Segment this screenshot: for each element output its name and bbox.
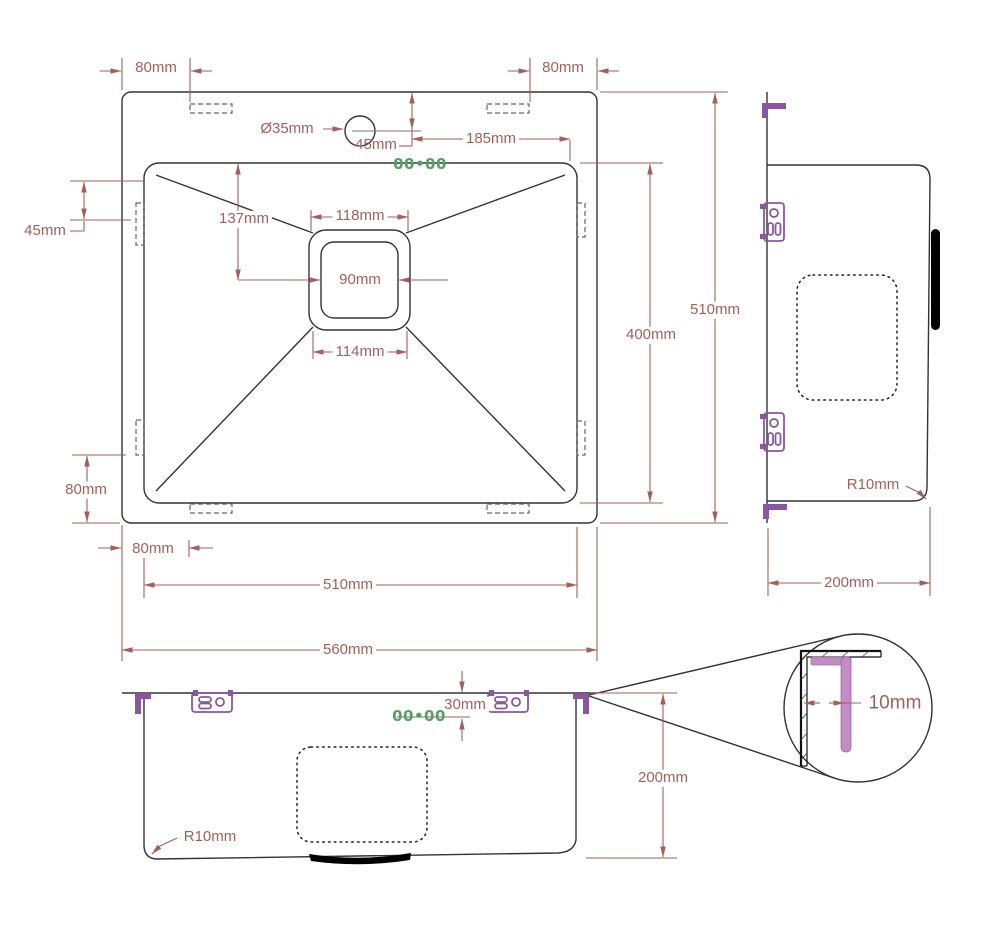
side-body [767, 165, 930, 501]
side-view [760, 92, 940, 523]
dim-bowl-width: 510mm [320, 577, 376, 594]
dim-bottom-offset-left: 80mm [132, 541, 174, 558]
front-mounting-bracket-left [192, 690, 233, 712]
dim-left-edge-to-slot: 45mm [24, 223, 66, 240]
dim-top-offset-right: 80mm [542, 60, 584, 77]
dim-drain-opening: 90mm [336, 272, 384, 289]
dim-overall-width: 560mm [320, 642, 376, 659]
dim-slot-to-bottom: 80mm [62, 482, 110, 499]
dim-drain-top-width: 118mm [333, 208, 388, 225]
mounting-slots [136, 104, 585, 513]
dim-overall-length: 510mm [687, 302, 743, 319]
front-mounting-bracket-right [488, 690, 529, 712]
dim-rim-height: 30mm [441, 697, 489, 714]
dim-front-corner-radius: R10mm [184, 829, 237, 846]
dim-side-corner-radius: R10mm [847, 477, 900, 494]
dim-top-offset-left: 80mm [135, 60, 177, 77]
front-left-clip [135, 694, 151, 714]
sink-outer-rim [122, 92, 597, 523]
dim-bowl-length: 400mm [623, 327, 679, 344]
dim-faucet-diameter: Ø35mm [260, 121, 313, 138]
dim-bowl-to-drain: 137mm [216, 211, 272, 228]
side-bottom-clip [763, 504, 787, 519]
side-mounting-bracket-top [760, 203, 784, 241]
front-drain-fitting [309, 853, 411, 864]
dim-front-depth: 200mm [635, 770, 691, 787]
dim-side-depth: 200mm [821, 575, 877, 592]
dim-faucet-from-top: 45mm [355, 137, 397, 154]
detail-clip-profile [811, 657, 851, 752]
side-drain-opening [931, 229, 940, 330]
dim-drain-bottom-width: 114mm [333, 344, 388, 361]
dim-faucet-to-edge: 185mm [463, 131, 519, 148]
side-mounting-bracket-bottom [760, 413, 784, 451]
top-view [122, 92, 597, 523]
drain-marking-top-view: 00•00 [393, 155, 447, 173]
sink-technical-drawing: 80mm 80mm Ø35mm 45mm 185mm 137mm 118mm 9… [0, 0, 1000, 927]
side-drain-template-dotted [797, 275, 897, 400]
drain-marking-front-view: 00•00 [392, 707, 446, 725]
front-drain-template-dotted [297, 747, 427, 842]
dim-detail-gap: 10mm [869, 694, 922, 715]
side-top-clip [762, 103, 786, 118]
